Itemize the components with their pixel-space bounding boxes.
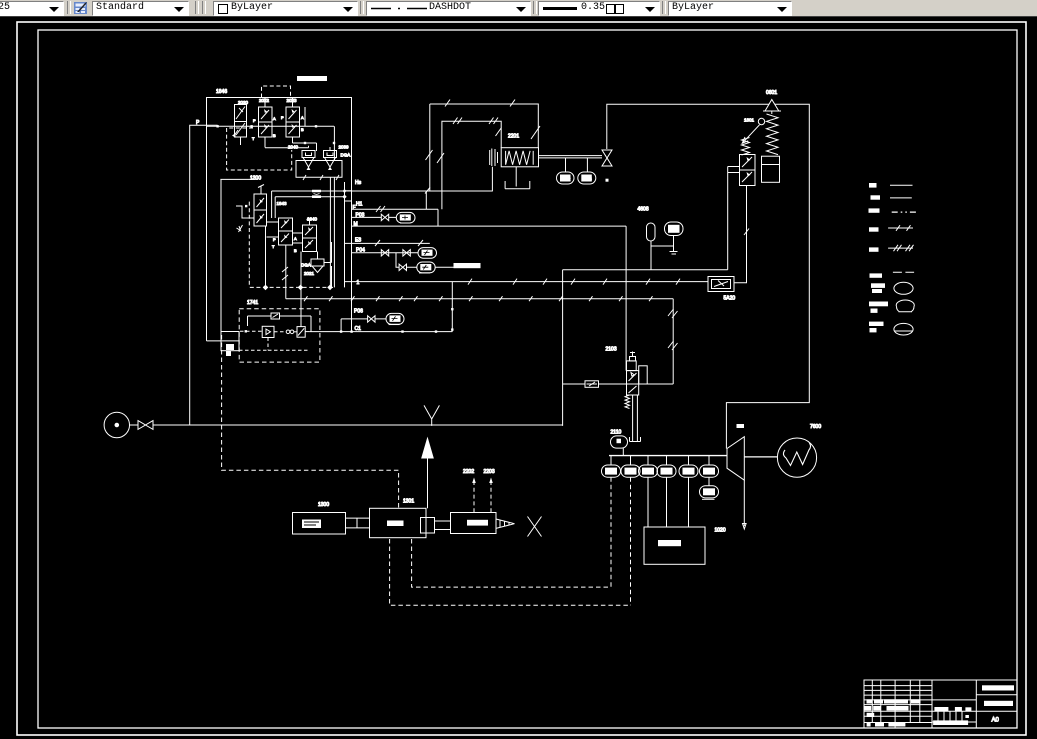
svg-text:4603: 4603 [582,177,593,182]
svg-text:A: A [294,236,297,241]
svg-text:P: P [281,115,284,120]
svg-text:A: A [301,115,304,120]
svg-text:2202: 2202 [463,469,474,475]
svg-text:4504: 4504 [643,470,654,475]
svg-text:A: A [273,116,276,121]
svg-text:1301: 1301 [403,499,414,505]
svg-text:B: B [294,248,297,253]
svg-text:A0: A0 [992,718,1000,724]
svg-text:1300: 1300 [318,502,329,508]
svg-text:2203: 2203 [484,469,495,475]
svg-text:4502: 4502 [606,470,617,475]
svg-text:1801: 1801 [744,118,755,123]
svg-text:4505: 4505 [661,470,672,475]
svg-text:1300: 1300 [250,176,261,182]
svg-text:4507: 4507 [704,470,715,475]
svg-text:1843: 1843 [277,201,288,206]
svg-text:Hs: Hs [355,180,362,186]
svg-text:T: T [252,136,255,141]
svg-text:1020: 1020 [715,528,726,534]
svg-text:2110: 2110 [611,430,622,436]
svg-text:P: P [253,118,256,123]
svg-text:4503: 4503 [625,470,636,475]
svg-text:4608: 4608 [669,228,680,233]
svg-text:4608: 4608 [638,207,649,213]
svg-text:1741: 1741 [247,300,258,306]
svg-text:1846: 1846 [216,89,227,95]
svg-text:2021: 2021 [304,271,315,276]
svg-text:4602: 4602 [561,177,572,182]
svg-text:2103: 2103 [606,347,617,353]
svg-text:DGA: DGA [301,263,311,268]
svg-text:E3: E3 [355,238,361,244]
svg-text:P: P [273,237,276,242]
svg-text:7600: 7600 [810,424,821,430]
svg-text:P06: P06 [354,309,363,315]
svg-text:2039: 2039 [339,145,350,150]
svg-text:F: F [353,205,356,211]
svg-text:B: B [273,133,276,138]
svg-text:4506: 4506 [683,470,694,475]
svg-text:4508: 4508 [704,491,715,496]
svg-text:5A20: 5A20 [724,296,736,302]
svg-text:T: T [272,244,275,249]
svg-text:0601: 0601 [766,90,777,96]
svg-text:H1: H1 [356,202,363,208]
svg-text:DGA: DGA [341,153,351,158]
svg-text:2040: 2040 [288,145,299,150]
svg-text:2201: 2201 [508,134,519,140]
svg-text:1: 1 [357,280,360,286]
svg-text:B: B [301,127,304,132]
